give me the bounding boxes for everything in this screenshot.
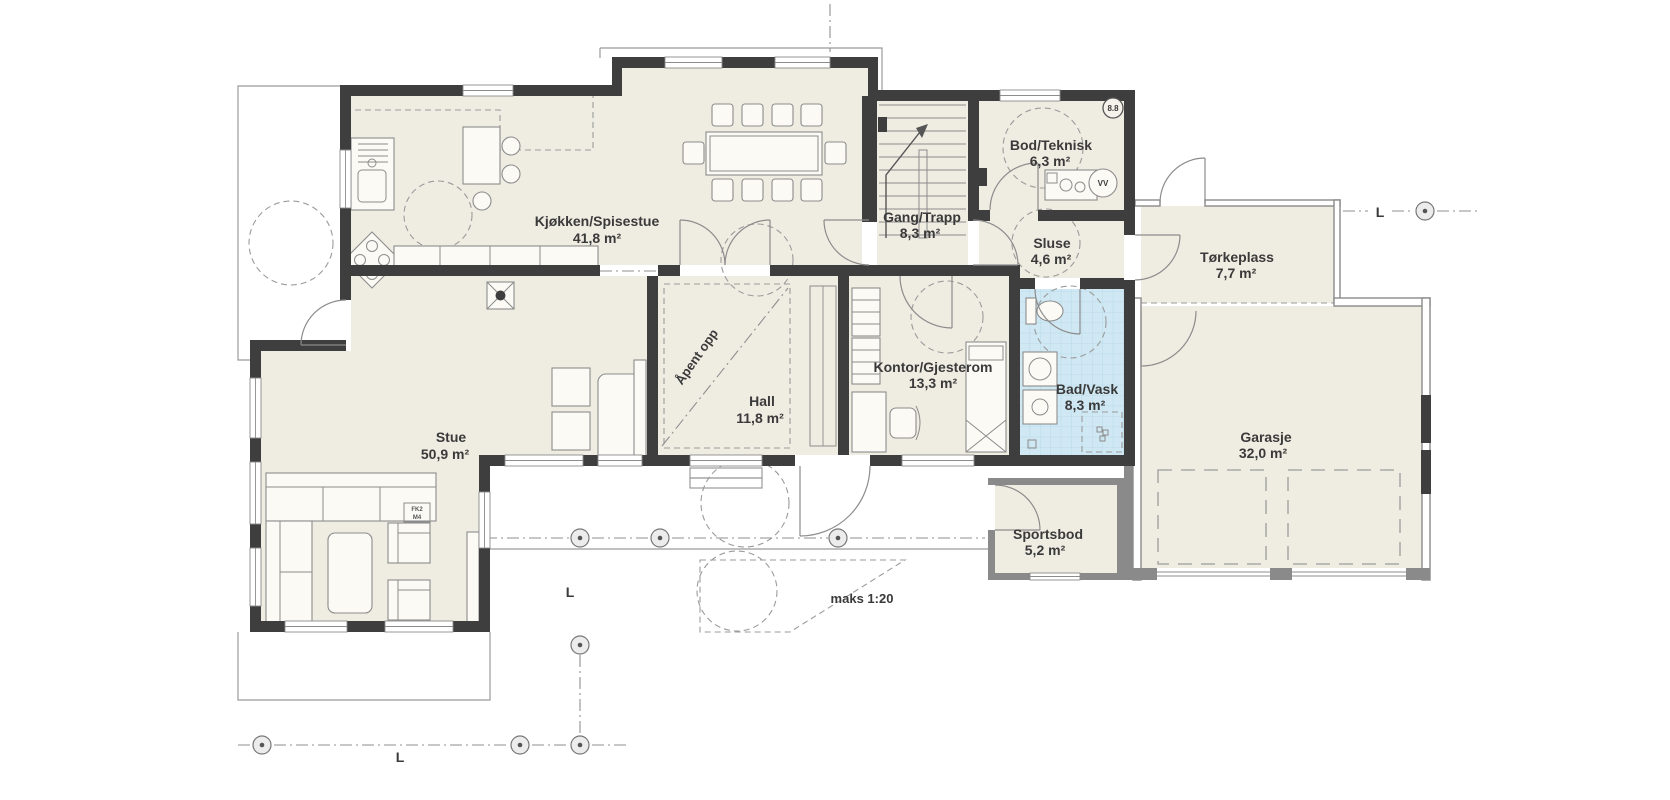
fireplace xyxy=(487,282,514,309)
sideboard xyxy=(467,532,479,624)
door-torkeplass-north xyxy=(1160,158,1205,203)
chair xyxy=(552,368,590,406)
armchair xyxy=(388,523,430,563)
section-bubble-label: 8.8 xyxy=(1107,104,1119,113)
room-area-stue: 50,9 m² xyxy=(421,446,470,462)
desk-chair xyxy=(890,408,916,438)
media-bench xyxy=(634,360,646,465)
room-label-torkeplass: Tørkeplass xyxy=(1200,249,1274,265)
water-heater-label: VV xyxy=(1098,179,1109,188)
room-area-gang: 8,3 m² xyxy=(900,225,941,241)
room-label-gang: Gang/Trapp xyxy=(883,209,961,225)
kitchen-lower-counter xyxy=(394,246,598,266)
toilet-tank xyxy=(1026,298,1036,324)
survey-marker xyxy=(571,529,589,547)
floor-dining-nook xyxy=(622,68,868,96)
survey-marker xyxy=(253,736,271,754)
sofa xyxy=(266,473,436,521)
room-label-hall: Hall xyxy=(749,393,775,409)
room-label-kontor: Kontor/Gjesterom xyxy=(873,359,992,375)
room-area-sluse: 4,6 m² xyxy=(1031,251,1072,267)
room-area-bad: 8,3 m² xyxy=(1065,397,1106,413)
room-area-garasje: 32,0 m² xyxy=(1239,445,1288,461)
floor-plan-page: Kjøkken/Spisestue 41,8 m² Gang/Trapp 8,3… xyxy=(0,0,1670,800)
room-label-stue: Stue xyxy=(436,429,467,445)
ramp-slope-label: maks 1:20 xyxy=(831,591,894,606)
room-area-bod: 6,3 m² xyxy=(1030,153,1071,169)
washer xyxy=(1023,352,1057,386)
survey-marker xyxy=(1416,202,1434,220)
section-line-label-mid: L xyxy=(566,584,575,600)
room-label-bad: Bad/Vask xyxy=(1056,381,1118,397)
electrical-panel xyxy=(979,168,987,186)
room-label-bod: Bod/Teknisk xyxy=(1010,137,1092,153)
coffee-table xyxy=(328,533,372,613)
door-main-entry xyxy=(800,466,870,536)
room-label-garasje: Garasje xyxy=(1240,429,1292,445)
room-area-sportsbod: 5,2 m² xyxy=(1025,542,1066,558)
room-label-sluse: Sluse xyxy=(1033,235,1071,251)
survey-marker xyxy=(571,636,589,654)
survey-marker xyxy=(829,529,847,547)
survey-marker xyxy=(571,736,589,754)
detail-code-line2: M4 xyxy=(413,515,422,521)
section-line-label-right: L xyxy=(1376,204,1385,220)
room-area-hall: 11,8 m² xyxy=(736,410,784,426)
room-area-kontor: 13,3 m² xyxy=(909,375,958,391)
section-line-label-bottom: L xyxy=(396,749,405,765)
chair xyxy=(552,412,590,450)
detail-code-line1: FK2 xyxy=(411,507,423,513)
desk xyxy=(852,392,886,452)
garage-window xyxy=(1421,395,1431,443)
room-label-kjokken: Kjøkken/Spisestue xyxy=(535,213,660,229)
kitchen-counter-sink xyxy=(351,138,394,210)
electrical-panel xyxy=(878,117,887,132)
survey-marker xyxy=(511,736,529,754)
door-terrace xyxy=(301,300,346,345)
floor-plan-canvas: Kjøkken/Spisestue 41,8 m² Gang/Trapp 8,3… xyxy=(0,0,1670,800)
garage-window xyxy=(1421,450,1431,494)
survey-marker xyxy=(651,529,669,547)
dryer xyxy=(1023,390,1057,424)
room-label-sportsbod: Sportsbod xyxy=(1013,526,1083,542)
room-area-kjokken: 41,8 m² xyxy=(573,230,622,246)
armchair xyxy=(388,580,430,620)
room-area-torkeplass: 7,7 m² xyxy=(1216,265,1257,281)
